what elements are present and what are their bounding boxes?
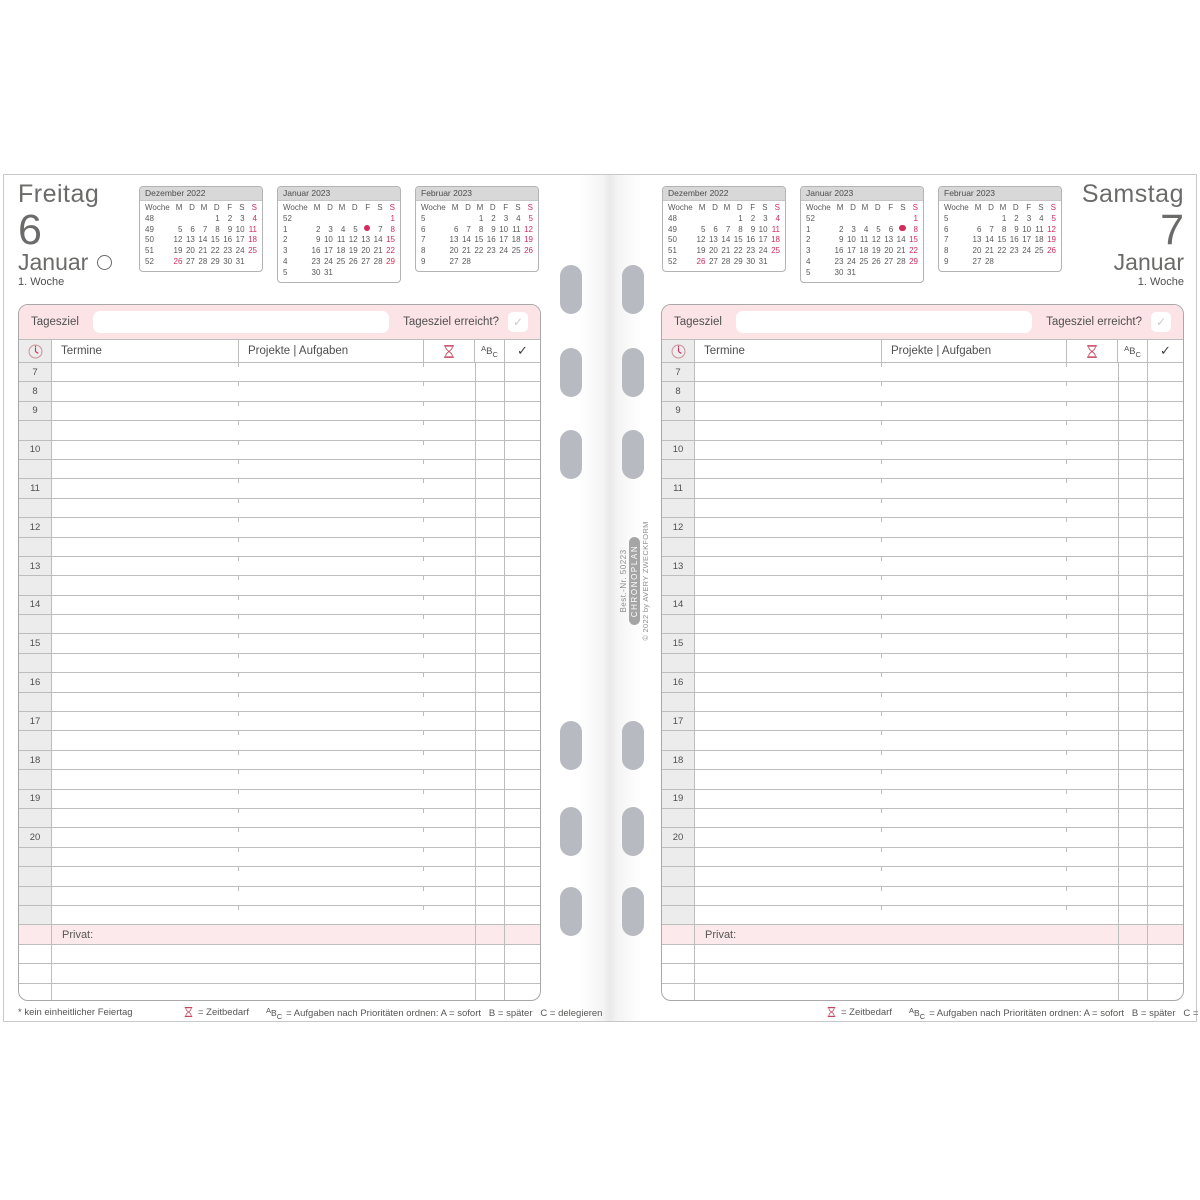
- projekte-cell: [239, 479, 424, 497]
- check-cell: [504, 634, 540, 652]
- schedule-row: [19, 866, 540, 885]
- abc-cell: [475, 712, 504, 730]
- check-cell: [504, 596, 540, 614]
- abc-cell: [475, 441, 504, 459]
- check-cell: [504, 673, 540, 691]
- zeitbedarf-cell: [424, 634, 475, 652]
- projekte-cell: [882, 518, 1067, 536]
- schedule-row: 14: [662, 595, 1183, 614]
- hour-label: [662, 906, 695, 924]
- schedule-row: [662, 866, 1183, 885]
- tagesziel-input: [93, 311, 389, 333]
- zeitbedarf-cell: [424, 770, 475, 788]
- privat-row: Privat:: [662, 924, 1183, 943]
- zeitbedarf-cell: [424, 731, 475, 749]
- abc-cell: [1118, 809, 1147, 827]
- zeitbedarf-cell: [1067, 460, 1118, 478]
- projekte-cell: [882, 382, 1067, 400]
- check-cell: [1147, 751, 1183, 769]
- hour-label: [662, 421, 695, 439]
- month-name: Januar: [18, 250, 88, 274]
- schedule-row: [662, 575, 1183, 594]
- tagesziel-input: [736, 311, 1032, 333]
- termine-cell: [52, 596, 239, 614]
- termine-cell: [695, 848, 882, 866]
- zeitbedarf-cell: [1067, 809, 1118, 827]
- zeitbedarf-cell: [1067, 770, 1118, 788]
- hour-label: 16: [19, 673, 52, 691]
- check-cell: [504, 693, 540, 711]
- termine-cell: [52, 848, 239, 866]
- termine-cell: [695, 867, 882, 885]
- projekte-cell: [239, 402, 424, 420]
- abc-cell: [1118, 518, 1147, 536]
- zeitbedarf-cell: [1067, 751, 1118, 769]
- day-number: 6: [18, 210, 112, 250]
- termine-cell: [52, 828, 239, 846]
- check-cell: [1147, 499, 1183, 517]
- termine-cell: [695, 557, 882, 575]
- schedule-row: 13: [662, 556, 1183, 575]
- punch-hole: [622, 807, 644, 856]
- hour-label: 9: [19, 402, 52, 420]
- hour-label: 18: [19, 751, 52, 769]
- schedule-header: Termine Projekte | Aufgaben ABC ✓: [662, 339, 1183, 362]
- abc-cell: [475, 945, 504, 963]
- projekte-cell: [882, 809, 1067, 827]
- check-cell: [504, 557, 540, 575]
- abc-cell: [1118, 925, 1147, 943]
- zeitbedarf-cell: [424, 925, 475, 943]
- hour-label: [19, 499, 52, 517]
- projekte-cell: [239, 363, 424, 381]
- hour-label: 19: [19, 790, 52, 808]
- zeitbedarf-cell: [1067, 499, 1118, 517]
- hour-label: [662, 809, 695, 827]
- projekte-cell: [882, 770, 1067, 788]
- hour-label: 20: [19, 828, 52, 846]
- check-cell: [1147, 538, 1183, 556]
- projekte-cell: [239, 673, 424, 691]
- check-cell: [1147, 460, 1183, 478]
- schedule-body: 7891011121314151617181920Privat:: [19, 362, 540, 1001]
- termine-cell: [52, 673, 239, 691]
- check-cell: [504, 363, 540, 381]
- hour-label: [19, 421, 52, 439]
- abc-cell: [1118, 441, 1147, 459]
- termine-cell: [52, 693, 239, 711]
- termine-cell: [695, 731, 882, 749]
- projekte-cell: [239, 712, 424, 730]
- punch-hole: [560, 721, 582, 770]
- schedule-row: [19, 459, 540, 478]
- hour-label: [662, 887, 695, 905]
- abc-cell: [475, 363, 504, 381]
- projekte-cell: [239, 984, 424, 1002]
- calendar-title: Dezember 2022: [663, 187, 785, 201]
- schedule-row: 9: [662, 401, 1183, 420]
- schedule-row: 18: [19, 750, 540, 769]
- abc-cell: [475, 828, 504, 846]
- hour-label: 11: [19, 479, 52, 497]
- calendar-title: Februar 2023: [939, 187, 1061, 201]
- abc-cell: [475, 693, 504, 711]
- zeitbedarf-cell: [1067, 790, 1118, 808]
- hour-label: 14: [662, 596, 695, 614]
- abc-cell: [475, 790, 504, 808]
- weekday-name: Samstag: [1082, 181, 1184, 208]
- projekte-cell: [239, 848, 424, 866]
- weekday-name: Freitag: [18, 181, 112, 208]
- col-header-projekte: Projekte | Aufgaben: [239, 340, 424, 362]
- abc-cell: [475, 731, 504, 749]
- week-number-label: 1. Woche: [18, 276, 64, 288]
- abc-cell: [1118, 673, 1147, 691]
- check-cell: [1147, 576, 1183, 594]
- check-cell: [1147, 809, 1183, 827]
- projekte-cell: [882, 984, 1067, 1002]
- hour-label: [662, 964, 695, 982]
- hour-label: 8: [662, 382, 695, 400]
- termine-cell: [695, 654, 882, 672]
- zeitbedarf-cell: [1067, 596, 1118, 614]
- check-cell: [504, 441, 540, 459]
- abc-cell: [1118, 557, 1147, 575]
- check-cell: [1147, 363, 1183, 381]
- schedule-row: 17: [662, 711, 1183, 730]
- check-cell: [504, 925, 540, 943]
- hour-label: [19, 906, 52, 924]
- abc-cell: [475, 421, 504, 439]
- clock-icon: [19, 340, 52, 362]
- termine-cell: [695, 712, 882, 730]
- projekte-cell: [882, 848, 1067, 866]
- projekte-cell: [239, 809, 424, 827]
- day-planner-card: Tagesziel Tagesziel erreicht? ✓ Termine …: [661, 304, 1184, 1001]
- termine-cell: [52, 479, 239, 497]
- schedule-row: 7: [19, 362, 540, 381]
- zeitbedarf-cell: [1067, 634, 1118, 652]
- hour-label: [19, 984, 52, 1002]
- termine-cell: [52, 751, 239, 769]
- projekte-cell: [239, 693, 424, 711]
- abc-cell: [1118, 867, 1147, 885]
- schedule-row: [662, 653, 1183, 672]
- termine-cell: [695, 693, 882, 711]
- abc-cell: [1118, 693, 1147, 711]
- abc-cell: [475, 673, 504, 691]
- check-cell: [1147, 984, 1183, 1002]
- schedule-row: [662, 983, 1183, 1002]
- hour-label: 17: [662, 712, 695, 730]
- zeitbedarf-cell: [424, 654, 475, 672]
- projekte-cell: [239, 867, 424, 885]
- abc-cell: [1118, 479, 1147, 497]
- schedule-row: 12: [662, 517, 1183, 536]
- termine-cell: [52, 964, 239, 982]
- page-saturday: Samstag 7 Januar Dezember 2022WocheMDMDF…: [598, 175, 1198, 1021]
- zeitbedarf-cell: [1067, 906, 1118, 924]
- col-header-termine: Termine: [52, 340, 239, 362]
- schedule-row: [662, 963, 1183, 982]
- col-header-check: ✓: [1147, 340, 1183, 362]
- zeitbedarf-cell: [424, 479, 475, 497]
- hour-label: [662, 925, 695, 943]
- projekte-cell: [239, 576, 424, 594]
- schedule-row: [662, 420, 1183, 439]
- termine-cell: [52, 499, 239, 517]
- projekte-cell: [882, 906, 1067, 924]
- hour-label: [19, 576, 52, 594]
- check-cell: [1147, 654, 1183, 672]
- termine-cell: [695, 770, 882, 788]
- termine-cell: [695, 615, 882, 633]
- termine-cell: [695, 441, 882, 459]
- schedule-row: [19, 537, 540, 556]
- hour-label: 18: [662, 751, 695, 769]
- zeitbedarf-cell: [424, 848, 475, 866]
- zeitbedarf-cell: [1067, 402, 1118, 420]
- termine-cell: [695, 964, 882, 982]
- hour-label: [662, 693, 695, 711]
- zeitbedarf-cell: [1067, 363, 1118, 381]
- termine-cell: [52, 770, 239, 788]
- mini-calendar-february: Februar 2023WocheMDMDFSS5123456678910111…: [415, 186, 539, 272]
- check-cell: [1147, 382, 1183, 400]
- projekte-cell: [882, 557, 1067, 575]
- projekte-cell: [239, 887, 424, 905]
- check-cell: [504, 538, 540, 556]
- planner-spread: Freitag 6 Januar Dezember 2022WocheMDMDF…: [3, 174, 1197, 1022]
- hourglass-icon: [826, 1006, 837, 1018]
- hour-label: [19, 615, 52, 633]
- projekte-cell: [882, 654, 1067, 672]
- hour-label: [19, 945, 52, 963]
- projekte-cell: [239, 615, 424, 633]
- check-cell: [1147, 557, 1183, 575]
- schedule-row: [19, 420, 540, 439]
- punch-hole: [622, 887, 644, 936]
- schedule-row: 19: [19, 789, 540, 808]
- schedule-row: 10: [19, 440, 540, 459]
- abc-cell: [1118, 634, 1147, 652]
- schedule-row: 20: [19, 827, 540, 846]
- zeitbedarf-cell: [424, 887, 475, 905]
- projekte-cell: [882, 887, 1067, 905]
- projekte-cell: [882, 402, 1067, 420]
- termine-cell: [52, 402, 239, 420]
- projekte-cell: [882, 421, 1067, 439]
- check-cell: [1147, 441, 1183, 459]
- zeitbedarf-cell: [424, 518, 475, 536]
- termine-cell: [695, 828, 882, 846]
- schedule-row: 15: [662, 633, 1183, 652]
- abc-legend: ABC = Aufgaben nach Prioritäten ordnen: …: [909, 1006, 1200, 1021]
- hour-label: [662, 538, 695, 556]
- termine-cell: [52, 421, 239, 439]
- hour-label: [19, 848, 52, 866]
- termine-cell: [695, 887, 882, 905]
- schedule-row: 10: [662, 440, 1183, 459]
- projekte-cell: [882, 731, 1067, 749]
- zeitbedarf-cell: [424, 673, 475, 691]
- hourglass-icon: [183, 1006, 194, 1018]
- schedule-row: 17: [19, 711, 540, 730]
- termine-cell: [52, 363, 239, 381]
- termine-cell: [52, 518, 239, 536]
- zeitbedarf-cell: [424, 576, 475, 594]
- abc-cell: [475, 596, 504, 614]
- projekte-cell: [239, 557, 424, 575]
- termine-cell: [52, 576, 239, 594]
- punch-hole: [560, 348, 582, 397]
- schedule-row: 13: [19, 556, 540, 575]
- schedule-row: [19, 614, 540, 633]
- check-cell: [504, 790, 540, 808]
- check-cell: [504, 809, 540, 827]
- zeitbedarf-cell: [424, 441, 475, 459]
- hour-label: [19, 770, 52, 788]
- schedule-row: [662, 769, 1183, 788]
- check-cell: [1147, 421, 1183, 439]
- projekte-cell: [239, 441, 424, 459]
- col-header-abc: ABC: [1118, 340, 1147, 362]
- hour-label: [662, 848, 695, 866]
- hour-label: [662, 945, 695, 963]
- schedule-row: [662, 905, 1183, 924]
- termine-cell: [695, 518, 882, 536]
- termine-cell: [695, 984, 882, 1002]
- hour-label: [662, 460, 695, 478]
- zeitbedarf-cell: [1067, 848, 1118, 866]
- schedule-row: [19, 983, 540, 1002]
- termine-cell: [52, 984, 239, 1002]
- check-cell: [1147, 906, 1183, 924]
- abc-cell: [475, 460, 504, 478]
- check-cell: [504, 518, 540, 536]
- abc-cell: [1118, 421, 1147, 439]
- holiday-footnote: * kein einheitlicher Feiertag: [18, 1007, 133, 1018]
- order-number: Best.-Nr. 50223: [619, 549, 628, 612]
- termine-cell: [695, 906, 882, 924]
- calendar-grid: WocheMDMDFSS5123456678910111271314151617…: [416, 201, 538, 271]
- punch-hole: [622, 348, 644, 397]
- termine-cell: [52, 809, 239, 827]
- check-cell: [504, 828, 540, 846]
- punch-hole: [622, 721, 644, 770]
- zeitbedarf-cell: [424, 828, 475, 846]
- schedule-row: 7: [662, 362, 1183, 381]
- goal-checkbox: ✓: [1151, 312, 1171, 332]
- hour-label: 13: [19, 557, 52, 575]
- zeitbedarf-cell: [1067, 421, 1118, 439]
- zeitbedarf-cell: [1067, 887, 1118, 905]
- check-cell: [1147, 693, 1183, 711]
- projekte-cell: [882, 499, 1067, 517]
- check-cell: [1147, 964, 1183, 982]
- zeitbedarf-cell: [424, 596, 475, 614]
- check-cell: [504, 712, 540, 730]
- zeitbedarf-cell: [424, 809, 475, 827]
- hour-label: [19, 654, 52, 672]
- check-cell: [504, 867, 540, 885]
- calendar-grid: WocheMDMDFSS5123456678910111271314151617…: [939, 201, 1061, 271]
- schedule-row: [662, 944, 1183, 963]
- day-planner-card: Tagesziel Tagesziel erreicht? ✓ Termine …: [18, 304, 541, 1001]
- schedule-header: Termine Projekte | Aufgaben ABC ✓: [19, 339, 540, 362]
- daily-goal-band: Tagesziel Tagesziel erreicht? ✓: [19, 305, 540, 339]
- hour-label: [19, 925, 52, 943]
- check-cell: [504, 770, 540, 788]
- abc-cell: [1118, 363, 1147, 381]
- zeitbedarf-cell: [424, 460, 475, 478]
- goal-question: Tagesziel erreicht?: [403, 316, 499, 328]
- termine-cell: [52, 731, 239, 749]
- zeitbedarf-cell: [424, 615, 475, 633]
- schedule-body: 7891011121314151617181920Privat:: [662, 362, 1183, 1001]
- abc-cell: [1118, 731, 1147, 749]
- hour-label: 12: [19, 518, 52, 536]
- zeitbedarf-cell: [1067, 479, 1118, 497]
- check-cell: [1147, 887, 1183, 905]
- hourglass-icon: [424, 340, 475, 362]
- mini-calendar-january: Januar 2023WocheMDMDFSS52112345682910111…: [800, 186, 924, 283]
- schedule-row: [662, 847, 1183, 866]
- hourglass-icon: [1067, 340, 1118, 362]
- schedule-row: 8: [19, 381, 540, 400]
- check-cell: [504, 984, 540, 1002]
- projekte-cell: [882, 615, 1067, 633]
- projekte-cell: [882, 867, 1067, 885]
- zeitbedarf-cell: [424, 382, 475, 400]
- termine-cell: [695, 576, 882, 594]
- termine-cell: [695, 809, 882, 827]
- abc-cell: [475, 382, 504, 400]
- zeitbedarf-cell: [424, 363, 475, 381]
- schedule-row: [19, 944, 540, 963]
- zeitbedarf-cell: [1067, 382, 1118, 400]
- schedule-row: [19, 769, 540, 788]
- privat-label-cell: Privat:: [695, 925, 882, 943]
- privat-label: Privat:: [695, 925, 882, 943]
- abc-cell: [1118, 596, 1147, 614]
- zeitbedarf-cell: [1067, 964, 1118, 982]
- termine-cell: [52, 945, 239, 963]
- check-cell: [504, 421, 540, 439]
- termine-cell: [52, 615, 239, 633]
- punch-hole: [622, 265, 644, 314]
- projekte-cell: [882, 538, 1067, 556]
- punch-hole: [560, 887, 582, 936]
- calendar-title: Januar 2023: [801, 187, 923, 201]
- projekte-cell: [882, 790, 1067, 808]
- hour-label: [19, 693, 52, 711]
- hour-label: 8: [19, 382, 52, 400]
- termine-cell: [52, 538, 239, 556]
- schedule-row: [19, 963, 540, 982]
- zeitbedarf-cell: [424, 906, 475, 924]
- check-cell: [504, 382, 540, 400]
- schedule-row: [19, 886, 540, 905]
- calendar-grid: WocheMDMDFSS4812344956789101150121314151…: [140, 201, 262, 271]
- calendar-title: Dezember 2022: [140, 187, 262, 201]
- projekte-cell: [882, 828, 1067, 846]
- schedule-row: 11: [662, 478, 1183, 497]
- abc-cell: [1118, 945, 1147, 963]
- zeitbedarf-cell: [1067, 984, 1118, 1002]
- termine-cell: [695, 945, 882, 963]
- check-cell: [504, 615, 540, 633]
